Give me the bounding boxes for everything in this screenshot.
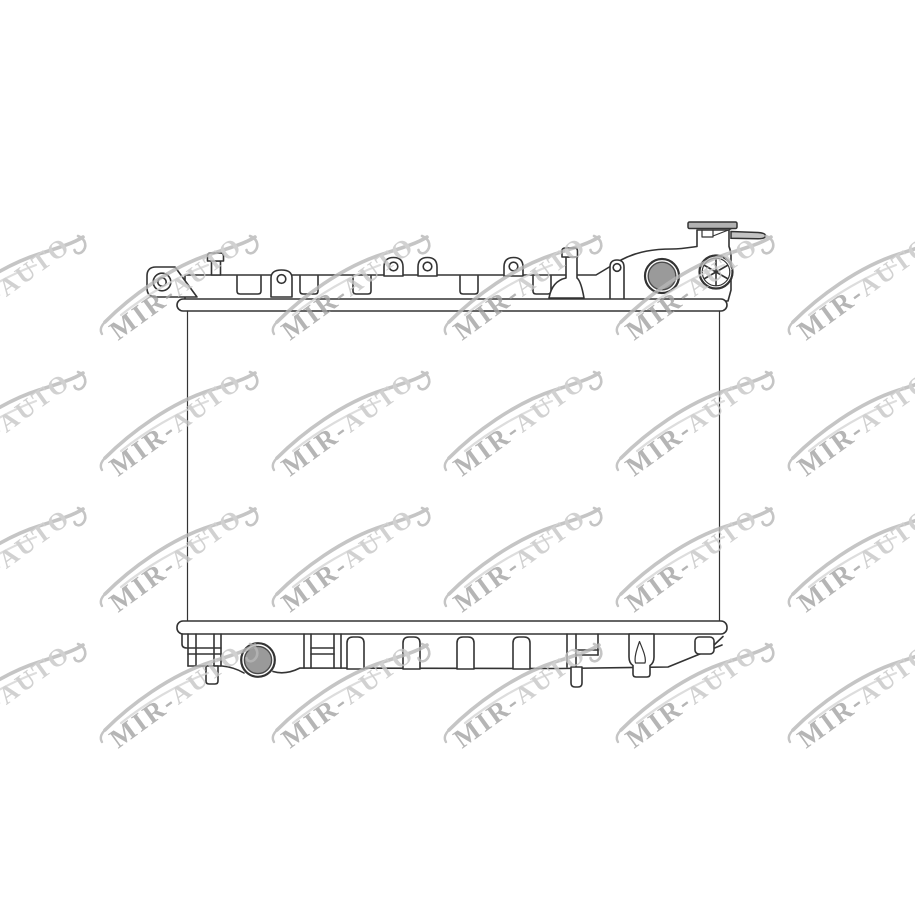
watermark-instance xyxy=(789,366,915,482)
watermark-instance xyxy=(617,502,773,618)
lug-strip xyxy=(610,260,624,301)
watermark-instance xyxy=(445,502,601,618)
watermark-instance xyxy=(617,366,773,482)
bracket-bottom-mid xyxy=(304,634,341,668)
lug-flush xyxy=(271,270,292,297)
drain-plug xyxy=(629,634,654,677)
watermark-instance xyxy=(789,230,915,346)
watermark-instance xyxy=(101,638,257,754)
watermark-instance xyxy=(0,366,85,482)
watermark-instance xyxy=(273,502,429,618)
watermark-instance xyxy=(0,502,85,618)
watermark-instance xyxy=(101,502,257,618)
watermark-instance xyxy=(273,366,429,482)
bottom-tank xyxy=(182,634,723,687)
watermark-instance xyxy=(445,366,601,482)
watermark-instance xyxy=(789,502,915,618)
watermark-instance xyxy=(0,638,85,754)
watermark-instance xyxy=(0,230,85,346)
watermark-instance xyxy=(101,366,257,482)
watermark-instance xyxy=(789,638,915,754)
product-image: MIR-AUTO xyxy=(0,0,915,915)
bottom-flange xyxy=(177,621,727,634)
radiator-line-drawing: MIR-AUTO xyxy=(0,0,915,915)
end-tab xyxy=(695,637,714,654)
